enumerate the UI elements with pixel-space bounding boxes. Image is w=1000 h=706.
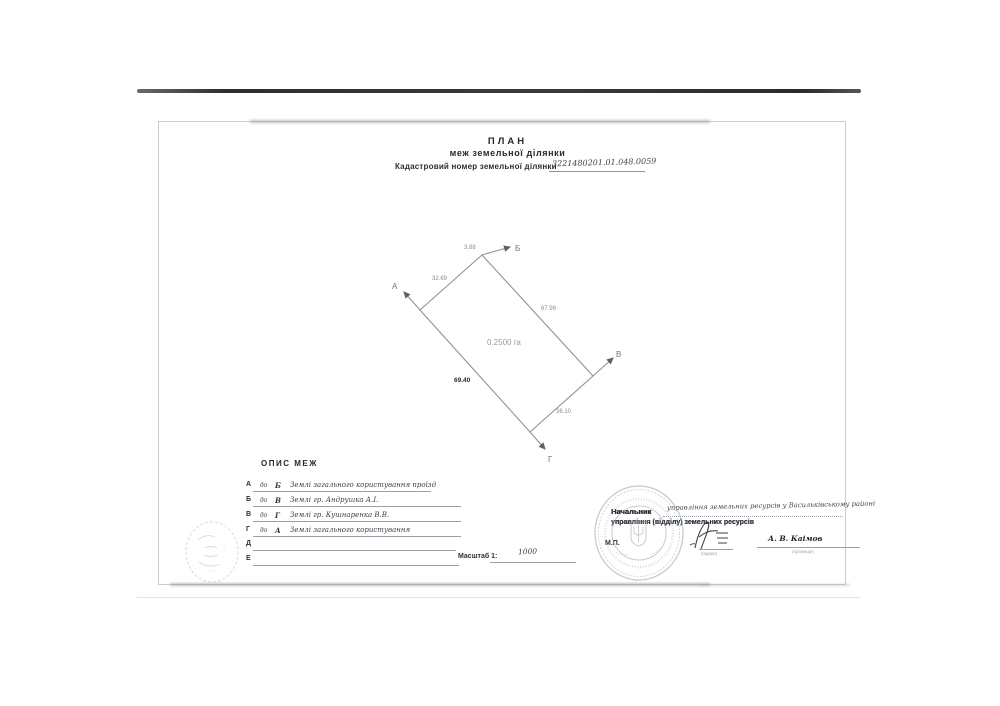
faint-left-stamp — [178, 515, 253, 595]
row-description: Землі гр. Кушнаренка В.В. — [290, 511, 389, 519]
vertex-label-v: В — [616, 350, 621, 359]
row-underline — [253, 536, 461, 537]
row-to: Б — [275, 481, 281, 490]
vertex-label-g: Г — [548, 455, 553, 464]
page-bottom-edge — [137, 597, 861, 598]
scale-underline — [490, 562, 576, 563]
arrow-to-a — [404, 292, 420, 310]
row-to: Г — [275, 511, 280, 520]
row-to: В — [275, 496, 281, 505]
page-title: ПЛАН — [460, 136, 555, 147]
parcel-diagram: А Б В Г 32.69 3.88 67.99 36.10 69.40 0.2… — [370, 225, 640, 475]
row-underline — [253, 565, 459, 566]
arrow-to-g — [530, 432, 545, 449]
length-bend-b: 3.88 — [464, 245, 476, 251]
row-description: Землі загального користування проїзд — [290, 481, 436, 489]
row-underline — [253, 521, 461, 522]
row-from: Б — [246, 496, 251, 503]
scanned-cadastral-plan-page: ПЛАН меж земельної ділянки Кадастровий н… — [0, 0, 1000, 706]
cadastral-number-underline — [549, 171, 645, 172]
approver-name-underline — [757, 547, 860, 548]
length-b-v: 67.99 — [541, 306, 557, 312]
row-description: Землі гр. Андрушка А.І. — [290, 496, 378, 504]
row-prep: до — [260, 527, 267, 534]
row-underline — [253, 550, 456, 551]
row-prep: до — [260, 512, 267, 519]
row-description: Землі загального користування — [290, 526, 410, 534]
scan-edge-bar — [137, 89, 861, 93]
signature — [683, 515, 738, 560]
vertex-label-a: А — [392, 282, 398, 291]
row-prep: до — [260, 482, 267, 489]
approver-name: А. В. Каімов — [768, 534, 822, 543]
approver-name-caption: (прізвище) — [792, 549, 814, 554]
length-a-bend: 32.69 — [432, 276, 448, 282]
row-from: А — [246, 481, 251, 488]
scale-label: Масштаб 1: — [458, 553, 497, 560]
cadastral-number-label: Кадастровий номер земельної ділянки — [395, 162, 557, 171]
page-subtitle: меж земельної ділянки — [430, 148, 585, 158]
row-prep: до — [260, 497, 267, 504]
row-underline — [253, 506, 461, 507]
boundaries-heading: ОПИС МЕЖ — [261, 459, 318, 468]
vertex-label-b: Б — [515, 244, 520, 253]
parcel-area-label: 0.2500 га — [487, 338, 521, 347]
arrow-to-v — [593, 358, 613, 376]
row-to: А — [275, 526, 281, 535]
length-g-a: 69.40 — [454, 377, 471, 384]
border-smudge — [250, 120, 710, 123]
arrow-to-b — [482, 247, 510, 255]
length-v-g: 36.10 — [556, 409, 572, 415]
row-underline — [253, 491, 431, 492]
scale-value: 1000 — [518, 547, 537, 557]
